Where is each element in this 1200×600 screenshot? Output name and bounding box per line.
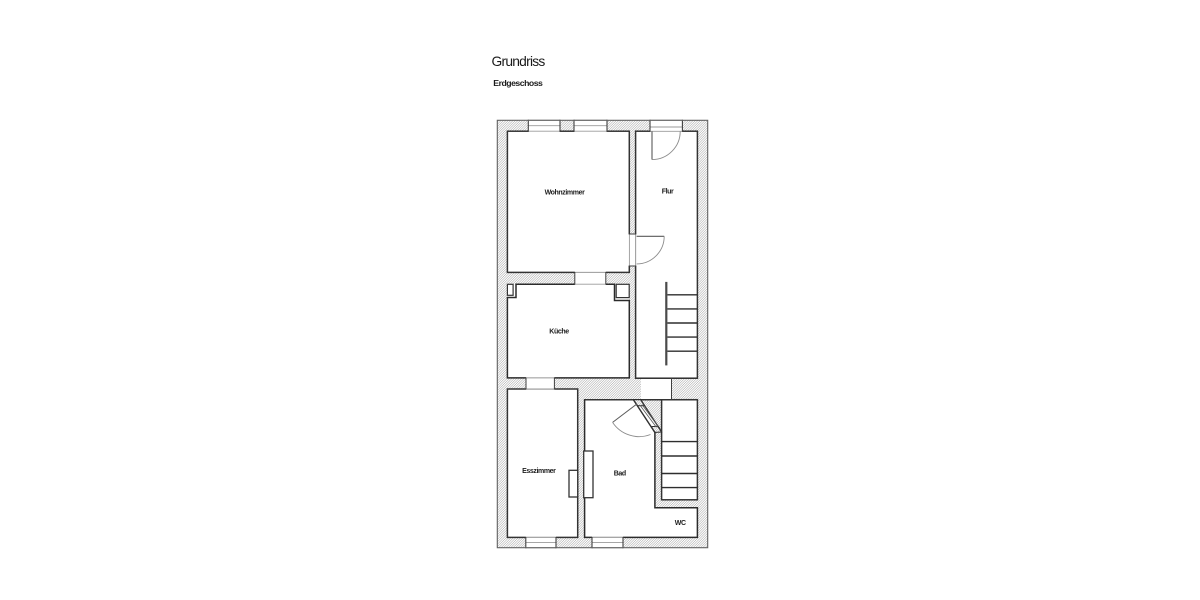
svg-text:Flur: Flur <box>662 189 674 196</box>
svg-text:Esszimmer: Esszimmer <box>522 468 556 475</box>
svg-text:WC: WC <box>675 520 686 527</box>
svg-text:Bad: Bad <box>614 470 626 477</box>
svg-text:Küche: Küche <box>549 328 569 335</box>
svg-text:Wohnzimmer: Wohnzimmer <box>545 190 585 197</box>
